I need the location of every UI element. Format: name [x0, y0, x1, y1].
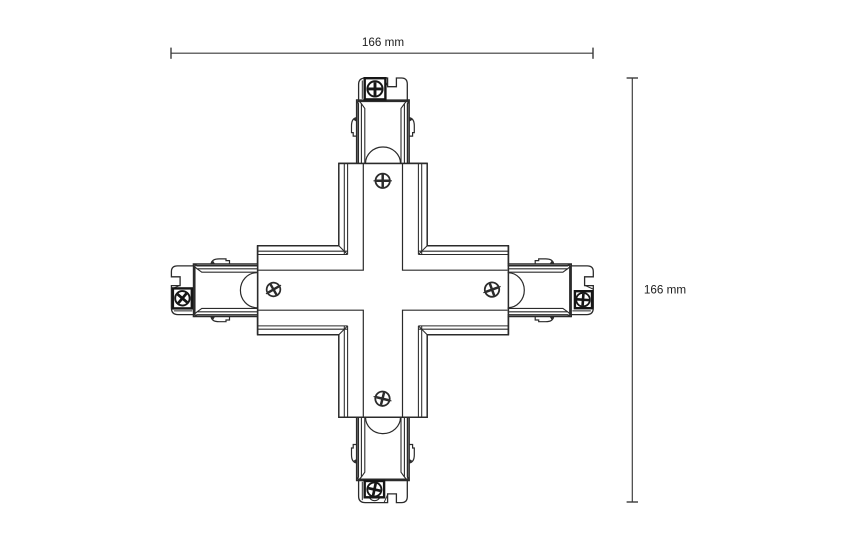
svg-text:166 mm: 166 mm [644, 283, 686, 296]
svg-text:166 mm: 166 mm [362, 36, 404, 49]
